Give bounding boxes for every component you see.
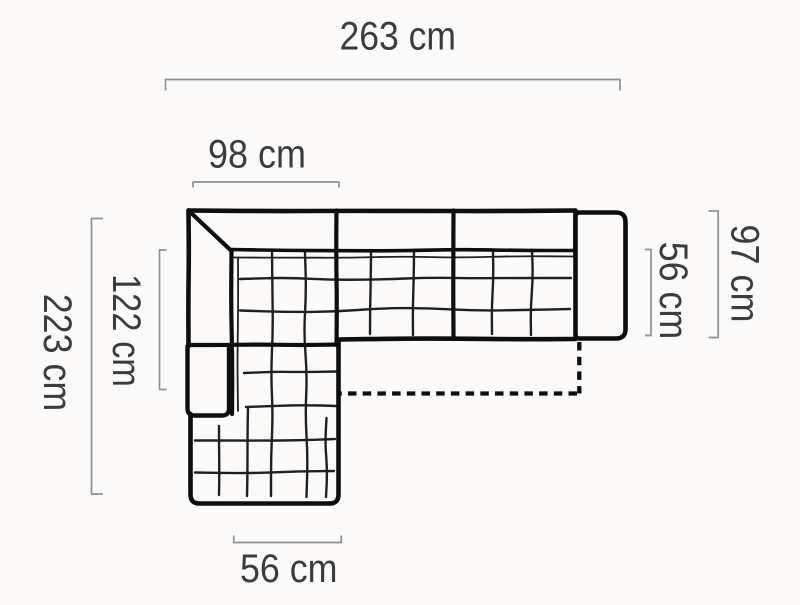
svg-text:98 cm: 98 cm xyxy=(208,133,306,177)
svg-text:263 cm: 263 cm xyxy=(340,15,457,59)
svg-text:223 cm: 223 cm xyxy=(35,294,79,412)
svg-text:122 cm: 122 cm xyxy=(104,274,148,387)
svg-text:56 cm: 56 cm xyxy=(651,242,695,340)
svg-text:97 cm: 97 cm xyxy=(723,225,767,323)
svg-text:56 cm: 56 cm xyxy=(240,547,338,591)
